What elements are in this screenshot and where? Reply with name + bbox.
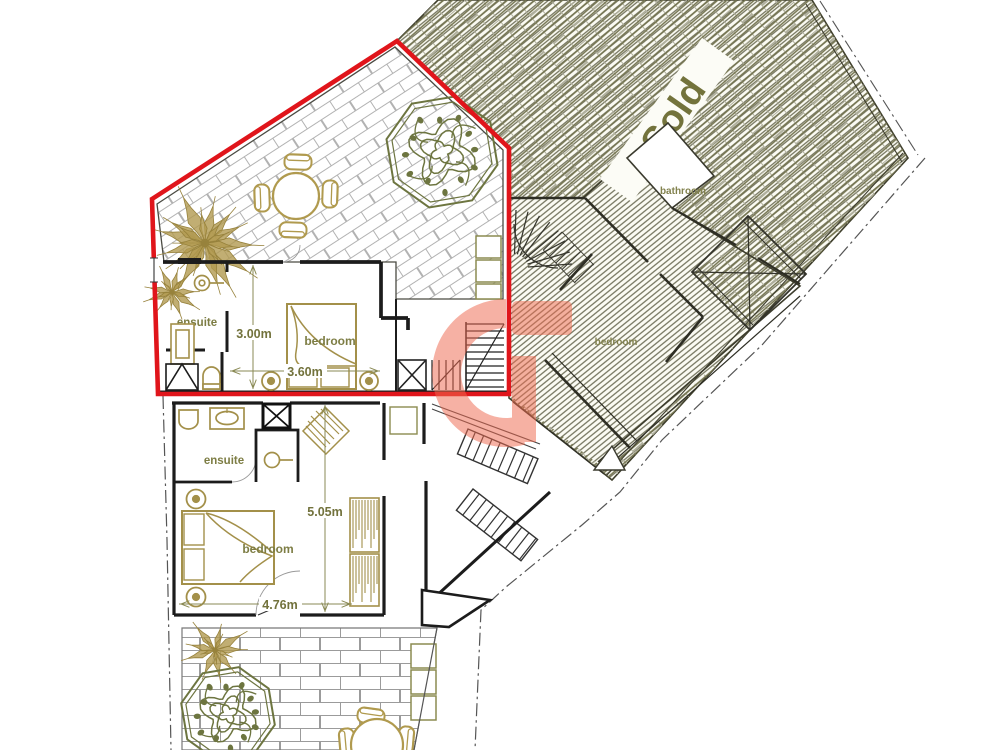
svg-text:bathroom: bathroom — [660, 186, 706, 197]
svg-text:4.76m: 4.76m — [262, 598, 297, 612]
svg-text:3.60m: 3.60m — [287, 365, 322, 379]
svg-text:3.00m: 3.00m — [236, 327, 271, 341]
svg-text:bedroom: bedroom — [595, 337, 638, 348]
svg-text:ensuite: ensuite — [204, 455, 244, 467]
svg-text:bedroom: bedroom — [242, 542, 293, 556]
svg-text:5.05m: 5.05m — [307, 505, 342, 519]
svg-text:bedroom: bedroom — [304, 334, 355, 348]
